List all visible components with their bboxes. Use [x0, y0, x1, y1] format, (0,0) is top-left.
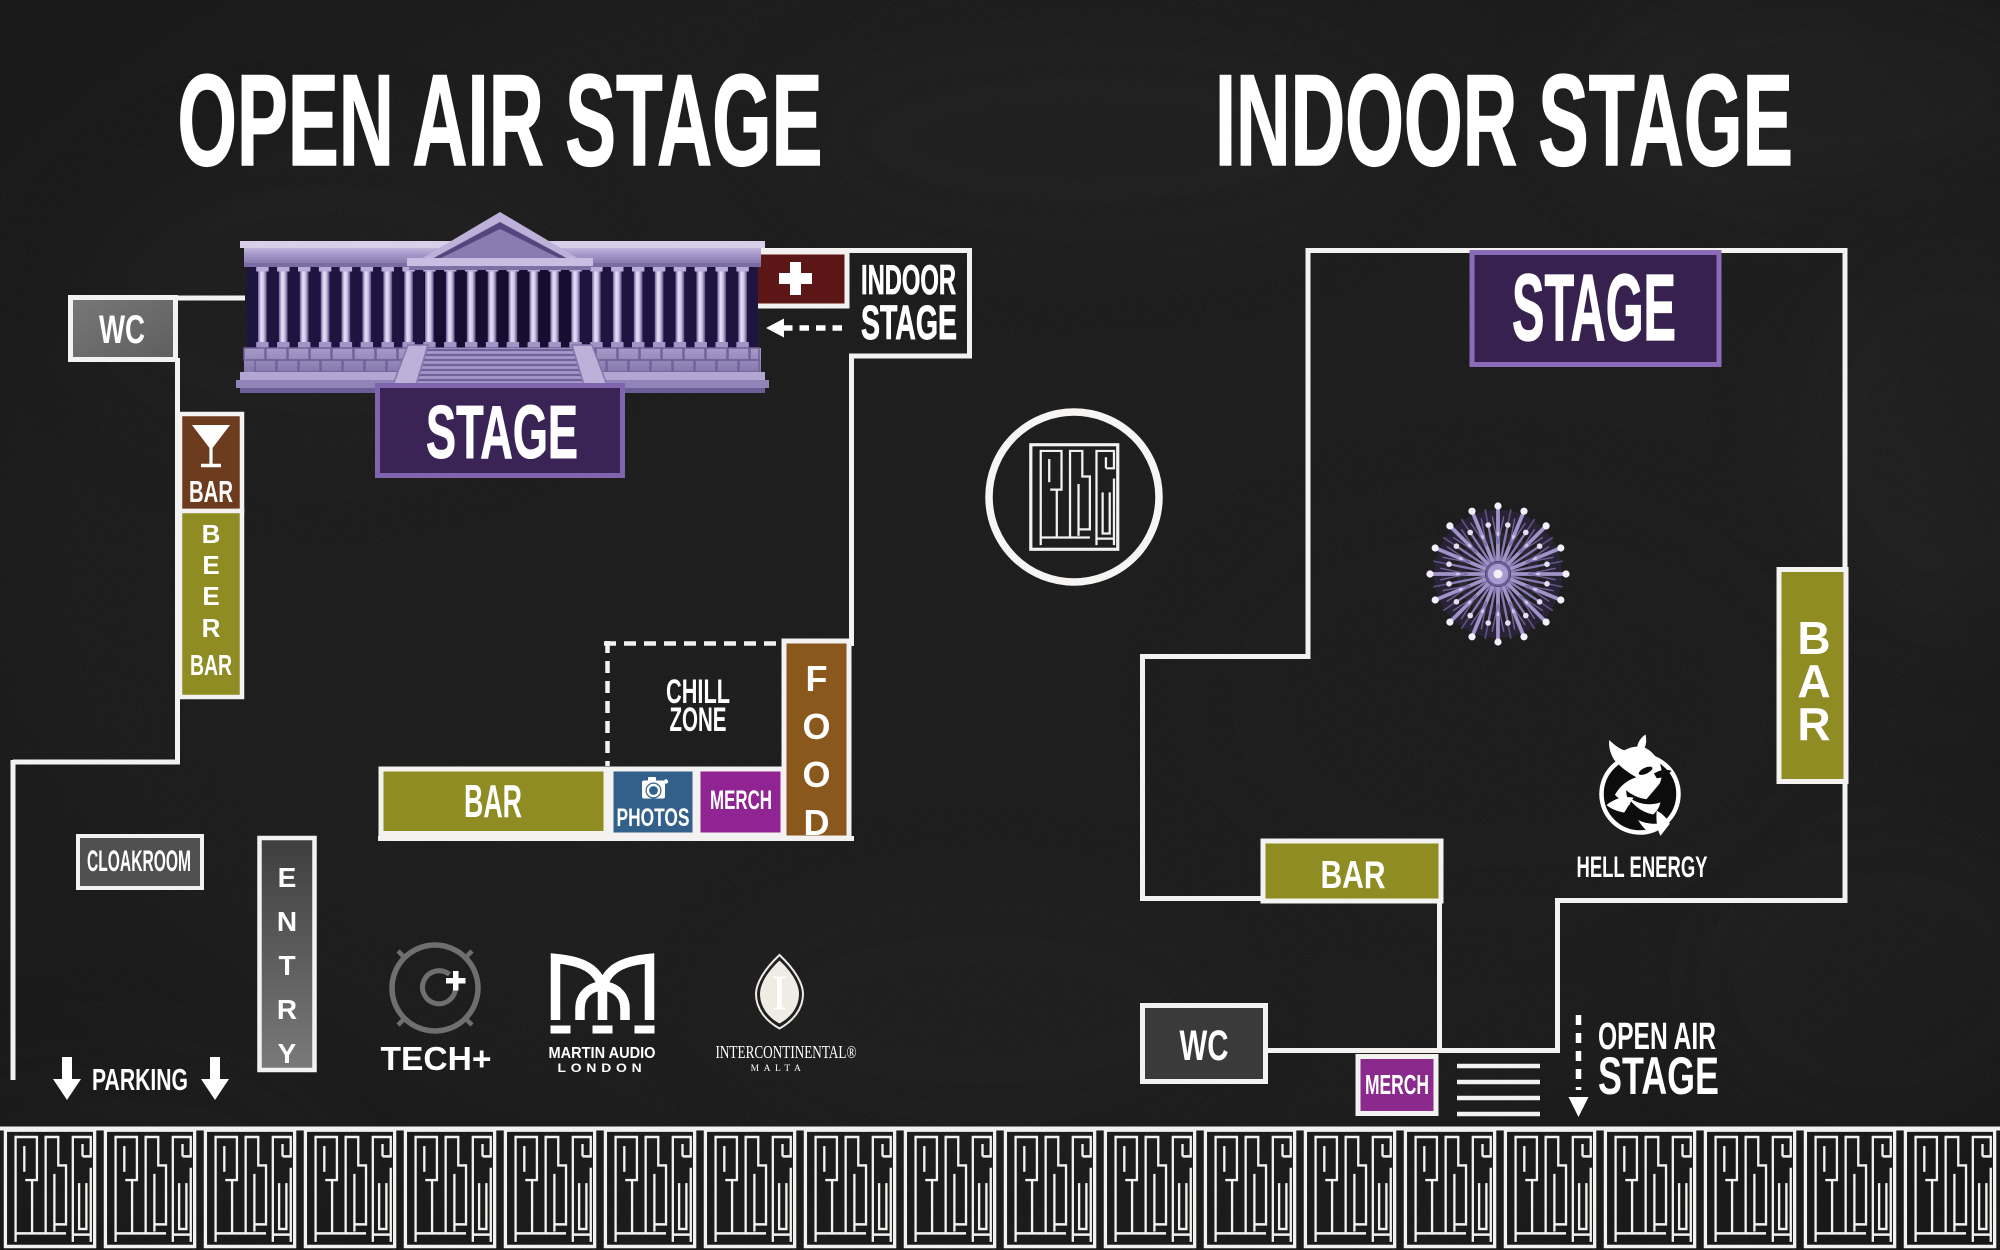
svg-text:OPEN AIR STAGE: OPEN AIR STAGE — [178, 47, 823, 193]
svg-text:HELL ENERGY: HELL ENERGY — [1577, 851, 1708, 884]
svg-text:STAGE: STAGE — [1598, 1047, 1719, 1106]
svg-text:ZONE: ZONE — [670, 701, 727, 739]
svg-text:PARKING: PARKING — [92, 1062, 188, 1097]
svg-text:E: E — [202, 581, 219, 611]
svg-text:E: E — [202, 550, 219, 580]
svg-text:I: I — [771, 964, 788, 1020]
svg-text:N: N — [277, 906, 297, 937]
svg-text:E: E — [278, 862, 297, 893]
svg-text:T: T — [278, 950, 295, 981]
svg-text:STAGE: STAGE — [1512, 255, 1676, 361]
svg-text:INDOOR STAGE: INDOOR STAGE — [1215, 47, 1793, 193]
svg-text:O: O — [802, 706, 830, 747]
svg-text:CLOAKROOM: CLOAKROOM — [87, 845, 191, 878]
svg-text:WC: WC — [1180, 1022, 1229, 1070]
svg-text:TECH+: TECH+ — [381, 1040, 492, 1077]
svg-text:WC: WC — [99, 308, 145, 352]
svg-text:R: R — [1797, 698, 1830, 750]
svg-text:BAR: BAR — [190, 650, 232, 682]
svg-text:Y: Y — [278, 1038, 297, 1069]
svg-text:PHOTOS: PHOTOS — [617, 804, 690, 832]
svg-text:LONDON: LONDON — [558, 1063, 647, 1075]
svg-text:MARTIN AUDIO: MARTIN AUDIO — [549, 1045, 656, 1062]
svg-text:BAR: BAR — [1321, 854, 1386, 897]
svg-text:MALTA: MALTA — [751, 1064, 806, 1074]
svg-text:R: R — [277, 994, 297, 1025]
svg-text:F: F — [806, 658, 828, 699]
svg-text:MERCH: MERCH — [710, 785, 772, 815]
svg-text:STAGE: STAGE — [426, 390, 578, 474]
svg-text:D: D — [804, 802, 830, 843]
svg-text:INTERCONTINENTAL®: INTERCONTINENTAL® — [716, 1042, 857, 1062]
svg-text:B: B — [202, 519, 221, 549]
svg-text:R: R — [202, 613, 221, 643]
svg-text:INDOOR: INDOOR — [861, 256, 956, 303]
svg-text:BAR: BAR — [189, 474, 233, 509]
svg-text:STAGE: STAGE — [861, 297, 957, 350]
svg-text:BAR: BAR — [464, 775, 522, 827]
svg-text:MERCH: MERCH — [1365, 1069, 1429, 1100]
svg-text:O: O — [802, 754, 830, 795]
